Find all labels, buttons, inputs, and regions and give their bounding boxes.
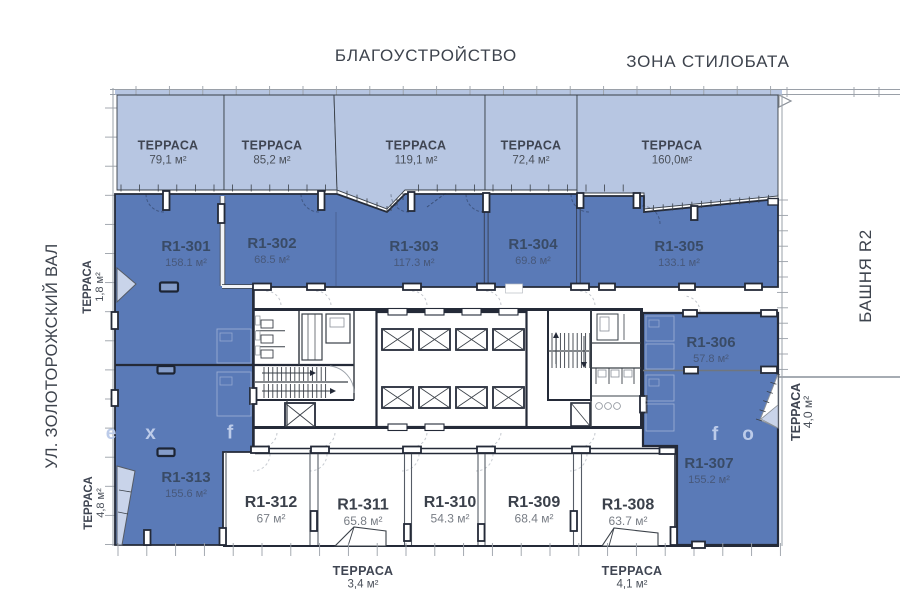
svg-text:f: f (227, 423, 234, 444)
svg-text:ТЕРРАСА: ТЕРРАСА (333, 564, 394, 578)
svg-text:БЛАГОУСТРОЙСТВО: БЛАГОУСТРОЙСТВО (335, 46, 517, 65)
svg-text:69.8 м²: 69.8 м² (515, 255, 551, 267)
svg-text:4,1 м²: 4,1 м² (617, 579, 648, 591)
svg-text:R1-305: R1-305 (654, 238, 703, 255)
svg-text:R1-308: R1-308 (602, 497, 655, 514)
svg-text:R1-304: R1-304 (508, 236, 558, 253)
svg-text:57.8 м²: 57.8 м² (693, 353, 729, 365)
svg-text:o: o (742, 424, 754, 445)
svg-text:1,8 м²: 1,8 м² (94, 272, 106, 302)
svg-text:119,1 м²: 119,1 м² (395, 155, 438, 167)
svg-text:ТЕРРАСА: ТЕРРАСА (138, 139, 199, 153)
svg-text:R1-303: R1-303 (389, 238, 438, 255)
svg-text:ТЕРРАСА: ТЕРРАСА (386, 139, 447, 153)
svg-text:160,0м²: 160,0м² (652, 155, 693, 167)
svg-text:72,4 м²: 72,4 м² (512, 155, 549, 167)
svg-text:БАШНЯ R2: БАШНЯ R2 (856, 229, 875, 323)
svg-text:R1-309: R1-309 (508, 494, 561, 511)
svg-text:R1-302: R1-302 (247, 235, 296, 252)
svg-text:85,2 м²: 85,2 м² (253, 155, 290, 167)
svg-text:R1-312: R1-312 (245, 494, 298, 511)
svg-text:ТЕРРАСА: ТЕРРАСА (602, 564, 663, 578)
svg-text:133.1 м²: 133.1 м² (658, 257, 700, 269)
svg-text:ТЕРРАСА: ТЕРРАСА (501, 139, 562, 153)
svg-text:4,0 м²: 4,0 м² (801, 396, 815, 428)
svg-text:155.6 м²: 155.6 м² (165, 488, 207, 500)
svg-text:R1-306: R1-306 (686, 334, 735, 351)
svg-text:79,1 м²: 79,1 м² (149, 155, 186, 167)
svg-text:ТЕРРАСА: ТЕРРАСА (242, 139, 303, 153)
svg-text:67 м²: 67 м² (257, 512, 286, 526)
svg-text:R1-310: R1-310 (424, 494, 477, 511)
svg-text:x: x (145, 423, 156, 444)
svg-text:117.3 м²: 117.3 м² (394, 257, 435, 269)
svg-text:4,8 м²: 4,8 м² (95, 488, 107, 518)
svg-text:68.5 м²: 68.5 м² (254, 254, 290, 266)
svg-text:ТЕРРАСА: ТЕРРАСА (82, 260, 94, 313)
svg-text:e: e (106, 423, 117, 444)
svg-text:ЗОНА СТИЛОБАТА: ЗОНА СТИЛОБАТА (626, 52, 790, 71)
svg-text:68.4 м²: 68.4 м² (515, 512, 554, 526)
svg-text:158.1 м²: 158.1 м² (165, 257, 207, 269)
svg-text:УЛ. ЗОЛОТОРОЖСКИЙ ВАЛ: УЛ. ЗОЛОТОРОЖСКИЙ ВАЛ (42, 243, 61, 468)
svg-text:R1-313: R1-313 (161, 469, 210, 486)
svg-text:R1-307: R1-307 (684, 455, 733, 472)
svg-text:63.7 м²: 63.7 м² (609, 514, 648, 528)
svg-text:54.3 м²: 54.3 м² (431, 512, 470, 526)
svg-text:3,4 м²: 3,4 м² (348, 579, 379, 591)
svg-text:R1-301: R1-301 (161, 238, 210, 255)
svg-text:R1-311: R1-311 (337, 497, 389, 514)
svg-text:ТЕРРАСА: ТЕРРАСА (83, 476, 95, 529)
svg-text:ТЕРРАСА: ТЕРРАСА (642, 139, 703, 153)
svg-text:f: f (712, 424, 719, 445)
svg-text:65.8 м²: 65.8 м² (344, 514, 383, 528)
svg-text:155.2 м²: 155.2 м² (688, 474, 730, 486)
